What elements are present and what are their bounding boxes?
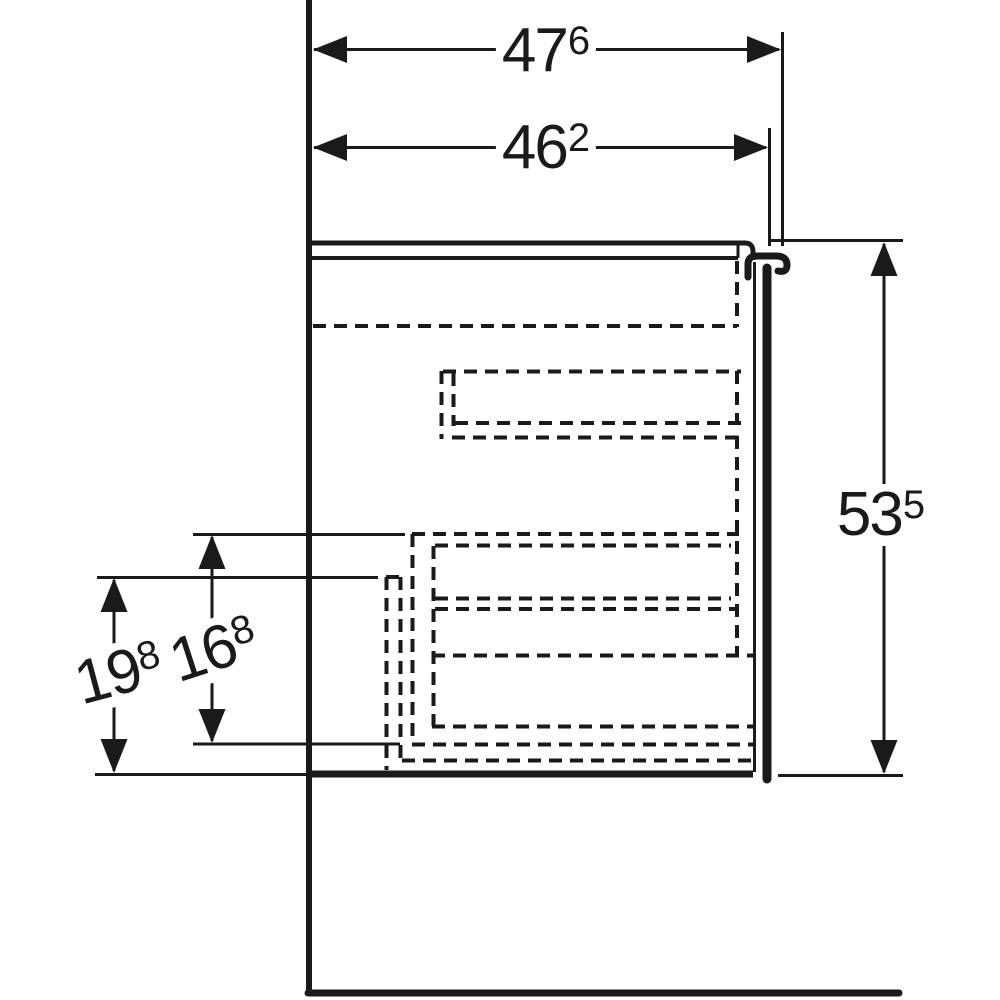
dim-superscript: 2 [568,116,590,160]
dim-superscript: 6 [568,19,590,63]
dim-superscript: 5 [903,483,925,527]
dim-value: 53 [837,480,902,549]
dim-label-right-height: 535 [831,484,931,546]
technical-drawing: 476 462 535 168 198 [0,0,1000,1000]
dim-value: 47 [502,16,567,85]
cabinet-outline [309,243,787,779]
dim-label-inner-width: 462 [496,117,596,179]
dim-value: 46 [502,113,567,182]
hidden-edges [313,261,753,770]
dim-label-top-width: 476 [496,20,596,82]
